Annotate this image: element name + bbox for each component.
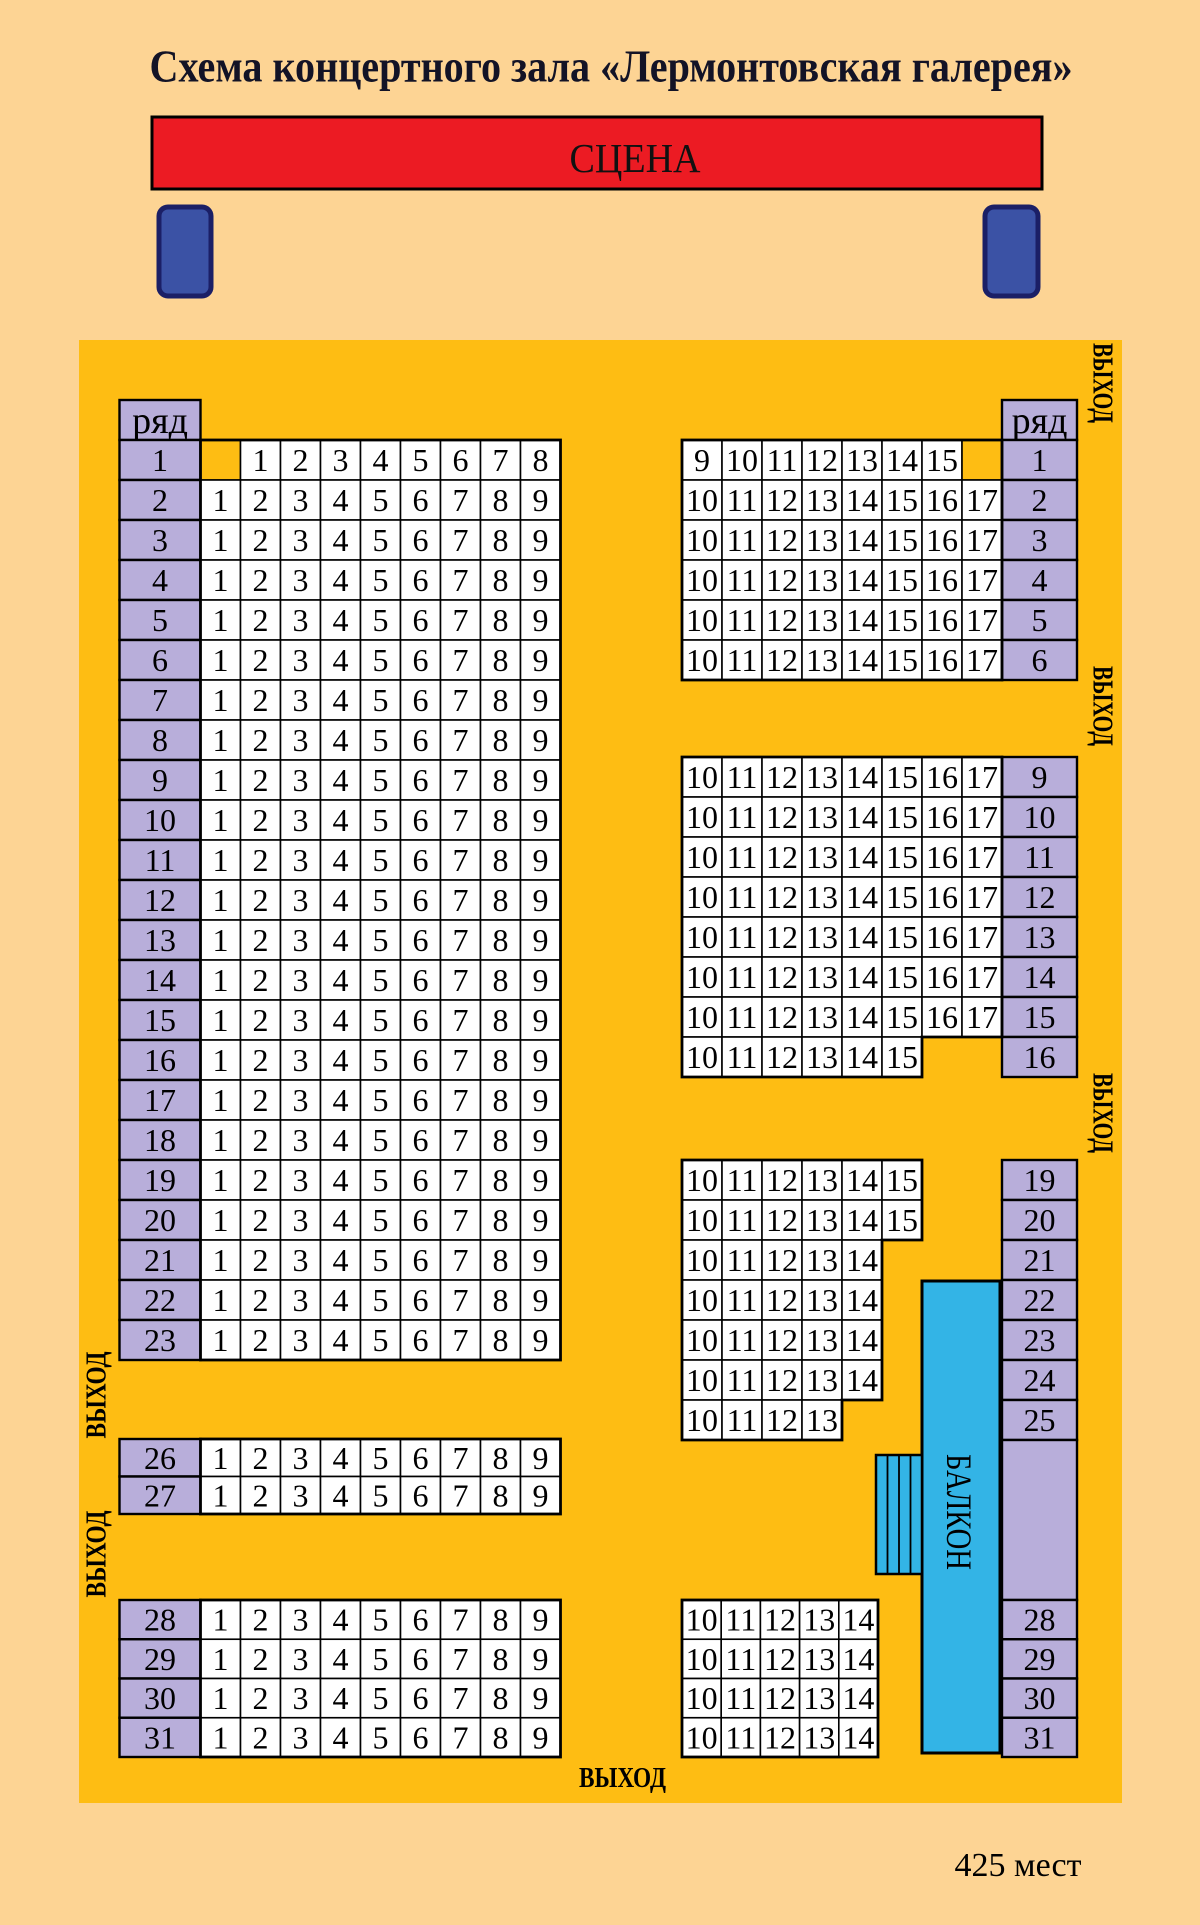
svg-text:4: 4 [333, 842, 349, 878]
svg-text:10: 10 [686, 1719, 718, 1755]
svg-text:14: 14 [842, 1602, 874, 1638]
svg-text:14: 14 [846, 879, 878, 915]
svg-text:3: 3 [293, 1122, 309, 1158]
svg-text:9: 9 [533, 602, 549, 638]
svg-text:2: 2 [253, 682, 269, 718]
svg-text:8: 8 [493, 1477, 509, 1513]
svg-text:10: 10 [686, 839, 718, 875]
svg-text:11: 11 [727, 1322, 758, 1358]
svg-text:8: 8 [493, 1719, 509, 1755]
svg-text:5: 5 [373, 1042, 389, 1078]
svg-text:1: 1 [213, 722, 229, 758]
svg-text:15: 15 [886, 879, 918, 915]
svg-text:4: 4 [333, 602, 349, 638]
svg-text:5: 5 [373, 1162, 389, 1198]
svg-text:12: 12 [766, 1202, 798, 1238]
svg-text:7: 7 [453, 682, 469, 718]
svg-text:12: 12 [766, 602, 798, 638]
svg-text:8: 8 [493, 882, 509, 918]
svg-text:15: 15 [1024, 999, 1056, 1035]
svg-text:14: 14 [846, 1162, 878, 1198]
svg-text:7: 7 [453, 1002, 469, 1038]
svg-text:6: 6 [413, 562, 429, 598]
svg-text:12: 12 [766, 1162, 798, 1198]
svg-text:15: 15 [886, 602, 918, 638]
svg-text:3: 3 [293, 1602, 309, 1638]
svg-text:7: 7 [152, 682, 168, 718]
svg-text:10: 10 [726, 442, 758, 478]
svg-text:5: 5 [373, 1602, 389, 1638]
svg-text:2: 2 [253, 1440, 269, 1476]
svg-text:2: 2 [253, 842, 269, 878]
svg-text:15: 15 [886, 1162, 918, 1198]
svg-text:ряд: ряд [1012, 400, 1068, 442]
svg-text:2: 2 [253, 1002, 269, 1038]
svg-text:3: 3 [293, 522, 309, 558]
svg-text:18: 18 [144, 1122, 176, 1158]
svg-text:8: 8 [152, 722, 168, 758]
svg-text:12: 12 [766, 919, 798, 955]
svg-text:8: 8 [493, 1082, 509, 1118]
svg-text:14: 14 [846, 959, 878, 995]
svg-text:5: 5 [373, 882, 389, 918]
svg-text:10: 10 [686, 999, 718, 1035]
svg-text:12: 12 [766, 999, 798, 1035]
svg-text:1: 1 [213, 1042, 229, 1078]
svg-text:9: 9 [533, 722, 549, 758]
svg-text:17: 17 [966, 482, 998, 518]
svg-text:11: 11 [727, 1402, 758, 1438]
svg-text:7: 7 [453, 642, 469, 678]
svg-text:11: 11 [767, 442, 798, 478]
svg-text:4: 4 [333, 642, 349, 678]
svg-text:6: 6 [413, 1680, 429, 1716]
svg-text:3: 3 [293, 1202, 309, 1238]
svg-text:ВЫХОД: ВЫХОД [1087, 1073, 1119, 1153]
svg-text:8: 8 [493, 1602, 509, 1638]
svg-text:13: 13 [806, 799, 838, 835]
svg-text:2: 2 [253, 562, 269, 598]
svg-text:14: 14 [846, 799, 878, 835]
svg-text:11: 11 [145, 842, 176, 878]
svg-text:6: 6 [413, 642, 429, 678]
svg-text:23: 23 [144, 1322, 176, 1358]
svg-text:ВЫХОД: ВЫХОД [579, 1763, 666, 1794]
svg-text:2: 2 [253, 762, 269, 798]
svg-text:7: 7 [453, 1162, 469, 1198]
svg-text:6: 6 [413, 762, 429, 798]
svg-text:16: 16 [926, 919, 958, 955]
svg-text:11: 11 [727, 959, 758, 995]
svg-text:6: 6 [413, 1202, 429, 1238]
svg-text:14: 14 [846, 999, 878, 1035]
svg-text:13: 13 [846, 442, 878, 478]
svg-text:23: 23 [1024, 1322, 1056, 1358]
svg-text:13: 13 [803, 1719, 835, 1755]
svg-text:11: 11 [1024, 839, 1055, 875]
svg-text:2: 2 [253, 1602, 269, 1638]
svg-text:1: 1 [213, 682, 229, 718]
svg-text:12: 12 [766, 1242, 798, 1278]
svg-text:7: 7 [453, 842, 469, 878]
svg-text:5: 5 [373, 602, 389, 638]
svg-text:6: 6 [453, 442, 469, 478]
svg-text:10: 10 [686, 602, 718, 638]
svg-text:8: 8 [493, 1322, 509, 1358]
svg-text:12: 12 [1024, 879, 1056, 915]
svg-text:8: 8 [493, 682, 509, 718]
svg-text:13: 13 [806, 1242, 838, 1278]
svg-text:ВЫХОД: ВЫХОД [1087, 666, 1119, 746]
svg-text:30: 30 [1024, 1680, 1056, 1716]
svg-text:13: 13 [806, 919, 838, 955]
svg-text:5: 5 [373, 1202, 389, 1238]
svg-text:ряд: ряд [132, 400, 188, 442]
svg-text:3: 3 [293, 562, 309, 598]
svg-text:9: 9 [533, 1242, 549, 1278]
svg-text:6: 6 [413, 522, 429, 558]
svg-text:5: 5 [373, 1719, 389, 1755]
svg-text:12: 12 [766, 482, 798, 518]
svg-text:14: 14 [846, 482, 878, 518]
svg-text:15: 15 [886, 1202, 918, 1238]
svg-text:7: 7 [453, 802, 469, 838]
svg-text:4: 4 [333, 722, 349, 758]
svg-text:5: 5 [373, 1440, 389, 1476]
svg-text:6: 6 [413, 922, 429, 958]
svg-text:3: 3 [293, 842, 309, 878]
svg-text:1: 1 [213, 1477, 229, 1513]
svg-text:9: 9 [533, 802, 549, 838]
svg-text:10: 10 [686, 1242, 718, 1278]
svg-text:3: 3 [293, 1282, 309, 1318]
svg-text:3: 3 [293, 882, 309, 918]
svg-text:7: 7 [453, 482, 469, 518]
svg-text:13: 13 [806, 959, 838, 995]
svg-text:3: 3 [293, 1042, 309, 1078]
svg-text:25: 25 [1024, 1402, 1056, 1438]
svg-text:9: 9 [533, 522, 549, 558]
svg-text:9: 9 [533, 882, 549, 918]
svg-text:9: 9 [533, 1002, 549, 1038]
svg-text:10: 10 [686, 1322, 718, 1358]
svg-text:17: 17 [966, 839, 998, 875]
svg-text:3: 3 [293, 1440, 309, 1476]
svg-text:12: 12 [144, 882, 176, 918]
svg-text:14: 14 [846, 562, 878, 598]
svg-text:7: 7 [453, 522, 469, 558]
svg-text:4: 4 [333, 922, 349, 958]
svg-text:3: 3 [1032, 522, 1048, 558]
svg-text:1: 1 [213, 1282, 229, 1318]
svg-text:12: 12 [766, 959, 798, 995]
svg-text:9: 9 [533, 1719, 549, 1755]
svg-text:2: 2 [253, 1162, 269, 1198]
svg-text:5: 5 [373, 482, 389, 518]
svg-text:10: 10 [1024, 799, 1056, 835]
svg-text:15: 15 [886, 562, 918, 598]
svg-text:8: 8 [493, 802, 509, 838]
svg-text:3: 3 [293, 1680, 309, 1716]
svg-text:1: 1 [213, 922, 229, 958]
svg-text:2: 2 [253, 1322, 269, 1358]
svg-text:5: 5 [373, 522, 389, 558]
svg-text:5: 5 [413, 442, 429, 478]
svg-text:8: 8 [493, 1440, 509, 1476]
svg-text:1: 1 [213, 882, 229, 918]
svg-text:ВЫХОД: ВЫХОД [1087, 343, 1119, 423]
svg-text:8: 8 [493, 1282, 509, 1318]
svg-text:12: 12 [766, 562, 798, 598]
svg-text:2: 2 [253, 1242, 269, 1278]
svg-text:2: 2 [253, 722, 269, 758]
svg-text:7: 7 [453, 1082, 469, 1118]
svg-text:3: 3 [293, 1641, 309, 1677]
svg-text:1: 1 [213, 1602, 229, 1638]
svg-text:20: 20 [144, 1202, 176, 1238]
svg-text:8: 8 [493, 482, 509, 518]
svg-text:14: 14 [886, 442, 918, 478]
svg-text:7: 7 [453, 1440, 469, 1476]
svg-text:8: 8 [493, 1680, 509, 1716]
svg-text:2: 2 [253, 602, 269, 638]
svg-text:14: 14 [842, 1680, 874, 1716]
svg-text:1: 1 [213, 1641, 229, 1677]
svg-text:9: 9 [533, 1122, 549, 1158]
svg-text:12: 12 [766, 1039, 798, 1075]
svg-text:17: 17 [966, 959, 998, 995]
svg-text:15: 15 [886, 1039, 918, 1075]
svg-text:9: 9 [533, 1282, 549, 1318]
svg-text:4: 4 [333, 1440, 349, 1476]
svg-text:10: 10 [686, 1641, 718, 1677]
svg-text:8: 8 [493, 1162, 509, 1198]
svg-text:11: 11 [727, 799, 758, 835]
svg-text:3: 3 [293, 1477, 309, 1513]
svg-text:7: 7 [453, 722, 469, 758]
svg-text:17: 17 [966, 602, 998, 638]
svg-text:7: 7 [453, 1282, 469, 1318]
svg-text:3: 3 [293, 802, 309, 838]
svg-text:10: 10 [686, 642, 718, 678]
svg-text:29: 29 [144, 1641, 176, 1677]
svg-text:11: 11 [727, 879, 758, 915]
svg-text:6: 6 [413, 722, 429, 758]
svg-text:1: 1 [213, 1202, 229, 1238]
svg-text:9: 9 [533, 482, 549, 518]
svg-text:31: 31 [1024, 1719, 1056, 1755]
svg-text:11: 11 [727, 482, 758, 518]
svg-text:13: 13 [806, 562, 838, 598]
svg-text:17: 17 [966, 562, 998, 598]
svg-text:6: 6 [413, 1242, 429, 1278]
svg-text:2: 2 [152, 482, 168, 518]
svg-text:12: 12 [766, 522, 798, 558]
svg-text:17: 17 [966, 642, 998, 678]
svg-text:17: 17 [966, 522, 998, 558]
svg-text:8: 8 [493, 762, 509, 798]
svg-text:2: 2 [253, 882, 269, 918]
svg-text:1: 1 [213, 1242, 229, 1278]
svg-text:13: 13 [806, 1202, 838, 1238]
svg-text:11: 11 [727, 1039, 758, 1075]
svg-text:6: 6 [413, 682, 429, 718]
svg-text:10: 10 [686, 759, 718, 795]
svg-text:7: 7 [453, 1202, 469, 1238]
svg-text:10: 10 [686, 879, 718, 915]
svg-text:11: 11 [727, 1162, 758, 1198]
svg-text:ВЫХОД: ВЫХОД [81, 1510, 113, 1597]
svg-text:7: 7 [453, 1641, 469, 1677]
svg-text:16: 16 [926, 482, 958, 518]
svg-text:6: 6 [413, 802, 429, 838]
svg-text:3: 3 [293, 722, 309, 758]
svg-text:19: 19 [144, 1162, 176, 1198]
svg-text:12: 12 [766, 1322, 798, 1358]
svg-text:14: 14 [846, 1202, 878, 1238]
svg-text:9: 9 [1032, 759, 1048, 795]
svg-text:СЦЕНА: СЦЕНА [570, 135, 701, 181]
svg-text:13: 13 [806, 879, 838, 915]
svg-text:9: 9 [694, 442, 710, 478]
svg-text:5: 5 [373, 962, 389, 998]
svg-text:5: 5 [373, 1641, 389, 1677]
svg-text:11: 11 [727, 602, 758, 638]
svg-text:5: 5 [152, 602, 168, 638]
svg-text:5: 5 [373, 1477, 389, 1513]
svg-text:3: 3 [293, 682, 309, 718]
svg-text:6: 6 [413, 882, 429, 918]
svg-text:3: 3 [293, 1162, 309, 1198]
svg-text:5: 5 [373, 1242, 389, 1278]
svg-text:9: 9 [533, 1082, 549, 1118]
svg-text:2: 2 [1032, 482, 1048, 518]
svg-text:1: 1 [213, 482, 229, 518]
svg-text:7: 7 [453, 882, 469, 918]
svg-text:9: 9 [533, 1042, 549, 1078]
svg-text:3: 3 [293, 482, 309, 518]
svg-text:26: 26 [144, 1440, 176, 1476]
svg-text:22: 22 [144, 1282, 176, 1318]
svg-text:3: 3 [293, 602, 309, 638]
svg-text:9: 9 [152, 762, 168, 798]
svg-text:15: 15 [886, 839, 918, 875]
svg-text:17: 17 [966, 759, 998, 795]
svg-text:14: 14 [846, 1282, 878, 1318]
svg-text:14: 14 [846, 1039, 878, 1075]
svg-text:6: 6 [1032, 642, 1048, 678]
svg-text:4: 4 [333, 1242, 349, 1278]
svg-text:16: 16 [926, 642, 958, 678]
svg-text:425 мест: 425 мест [955, 1847, 1082, 1884]
svg-text:14: 14 [1024, 959, 1056, 995]
svg-text:13: 13 [806, 642, 838, 678]
svg-text:4: 4 [333, 1477, 349, 1513]
svg-text:2: 2 [253, 1719, 269, 1755]
svg-text:9: 9 [533, 1680, 549, 1716]
svg-text:15: 15 [886, 799, 918, 835]
svg-text:12: 12 [764, 1641, 796, 1677]
svg-text:4: 4 [373, 442, 389, 478]
svg-text:1: 1 [213, 962, 229, 998]
svg-text:16: 16 [144, 1042, 176, 1078]
svg-text:7: 7 [453, 962, 469, 998]
svg-text:10: 10 [686, 1402, 718, 1438]
svg-text:21: 21 [144, 1242, 176, 1278]
svg-text:9: 9 [533, 642, 549, 678]
svg-text:4: 4 [333, 482, 349, 518]
svg-text:8: 8 [493, 1122, 509, 1158]
svg-text:12: 12 [766, 879, 798, 915]
svg-text:6: 6 [413, 1322, 429, 1358]
svg-text:3: 3 [293, 1719, 309, 1755]
svg-text:10: 10 [686, 959, 718, 995]
svg-text:11: 11 [727, 1202, 758, 1238]
svg-text:10: 10 [686, 1162, 718, 1198]
svg-text:11: 11 [727, 839, 758, 875]
svg-text:9: 9 [533, 1477, 549, 1513]
svg-text:4: 4 [333, 1162, 349, 1198]
svg-text:2: 2 [253, 642, 269, 678]
svg-text:9: 9 [533, 562, 549, 598]
svg-text:8: 8 [493, 962, 509, 998]
svg-text:11: 11 [725, 1680, 756, 1716]
svg-text:7: 7 [453, 1719, 469, 1755]
svg-text:7: 7 [453, 1680, 469, 1716]
svg-text:17: 17 [966, 879, 998, 915]
svg-text:13: 13 [806, 1322, 838, 1358]
svg-text:13: 13 [806, 1402, 838, 1438]
svg-text:2: 2 [253, 1680, 269, 1716]
svg-text:9: 9 [533, 1162, 549, 1198]
svg-text:6: 6 [413, 1042, 429, 1078]
svg-text:3: 3 [293, 1002, 309, 1038]
svg-text:1: 1 [213, 562, 229, 598]
svg-text:21: 21 [1024, 1242, 1056, 1278]
svg-text:3: 3 [293, 922, 309, 958]
svg-text:11: 11 [725, 1641, 756, 1677]
svg-text:15: 15 [144, 1002, 176, 1038]
svg-text:4: 4 [333, 1202, 349, 1238]
svg-text:6: 6 [413, 482, 429, 518]
svg-text:6: 6 [152, 642, 168, 678]
svg-text:14: 14 [846, 642, 878, 678]
svg-text:15: 15 [926, 442, 958, 478]
svg-text:15: 15 [886, 919, 918, 955]
svg-text:4: 4 [333, 522, 349, 558]
svg-text:3: 3 [293, 1322, 309, 1358]
svg-text:16: 16 [926, 839, 958, 875]
svg-text:7: 7 [453, 1242, 469, 1278]
svg-text:8: 8 [493, 1641, 509, 1677]
svg-text:13: 13 [806, 839, 838, 875]
svg-text:15: 15 [886, 522, 918, 558]
svg-text:11: 11 [727, 1282, 758, 1318]
svg-text:13: 13 [806, 522, 838, 558]
svg-text:1: 1 [253, 442, 269, 478]
svg-text:11: 11 [727, 919, 758, 955]
svg-text:2: 2 [253, 922, 269, 958]
svg-text:13: 13 [806, 1039, 838, 1075]
svg-text:10: 10 [686, 799, 718, 835]
svg-text:1: 1 [1032, 442, 1048, 478]
svg-text:БАЛКОН: БАЛКОН [939, 1454, 979, 1570]
svg-text:5: 5 [373, 1122, 389, 1158]
svg-text:13: 13 [803, 1680, 835, 1716]
svg-text:3: 3 [293, 762, 309, 798]
svg-text:11: 11 [727, 642, 758, 678]
svg-text:7: 7 [453, 1122, 469, 1158]
